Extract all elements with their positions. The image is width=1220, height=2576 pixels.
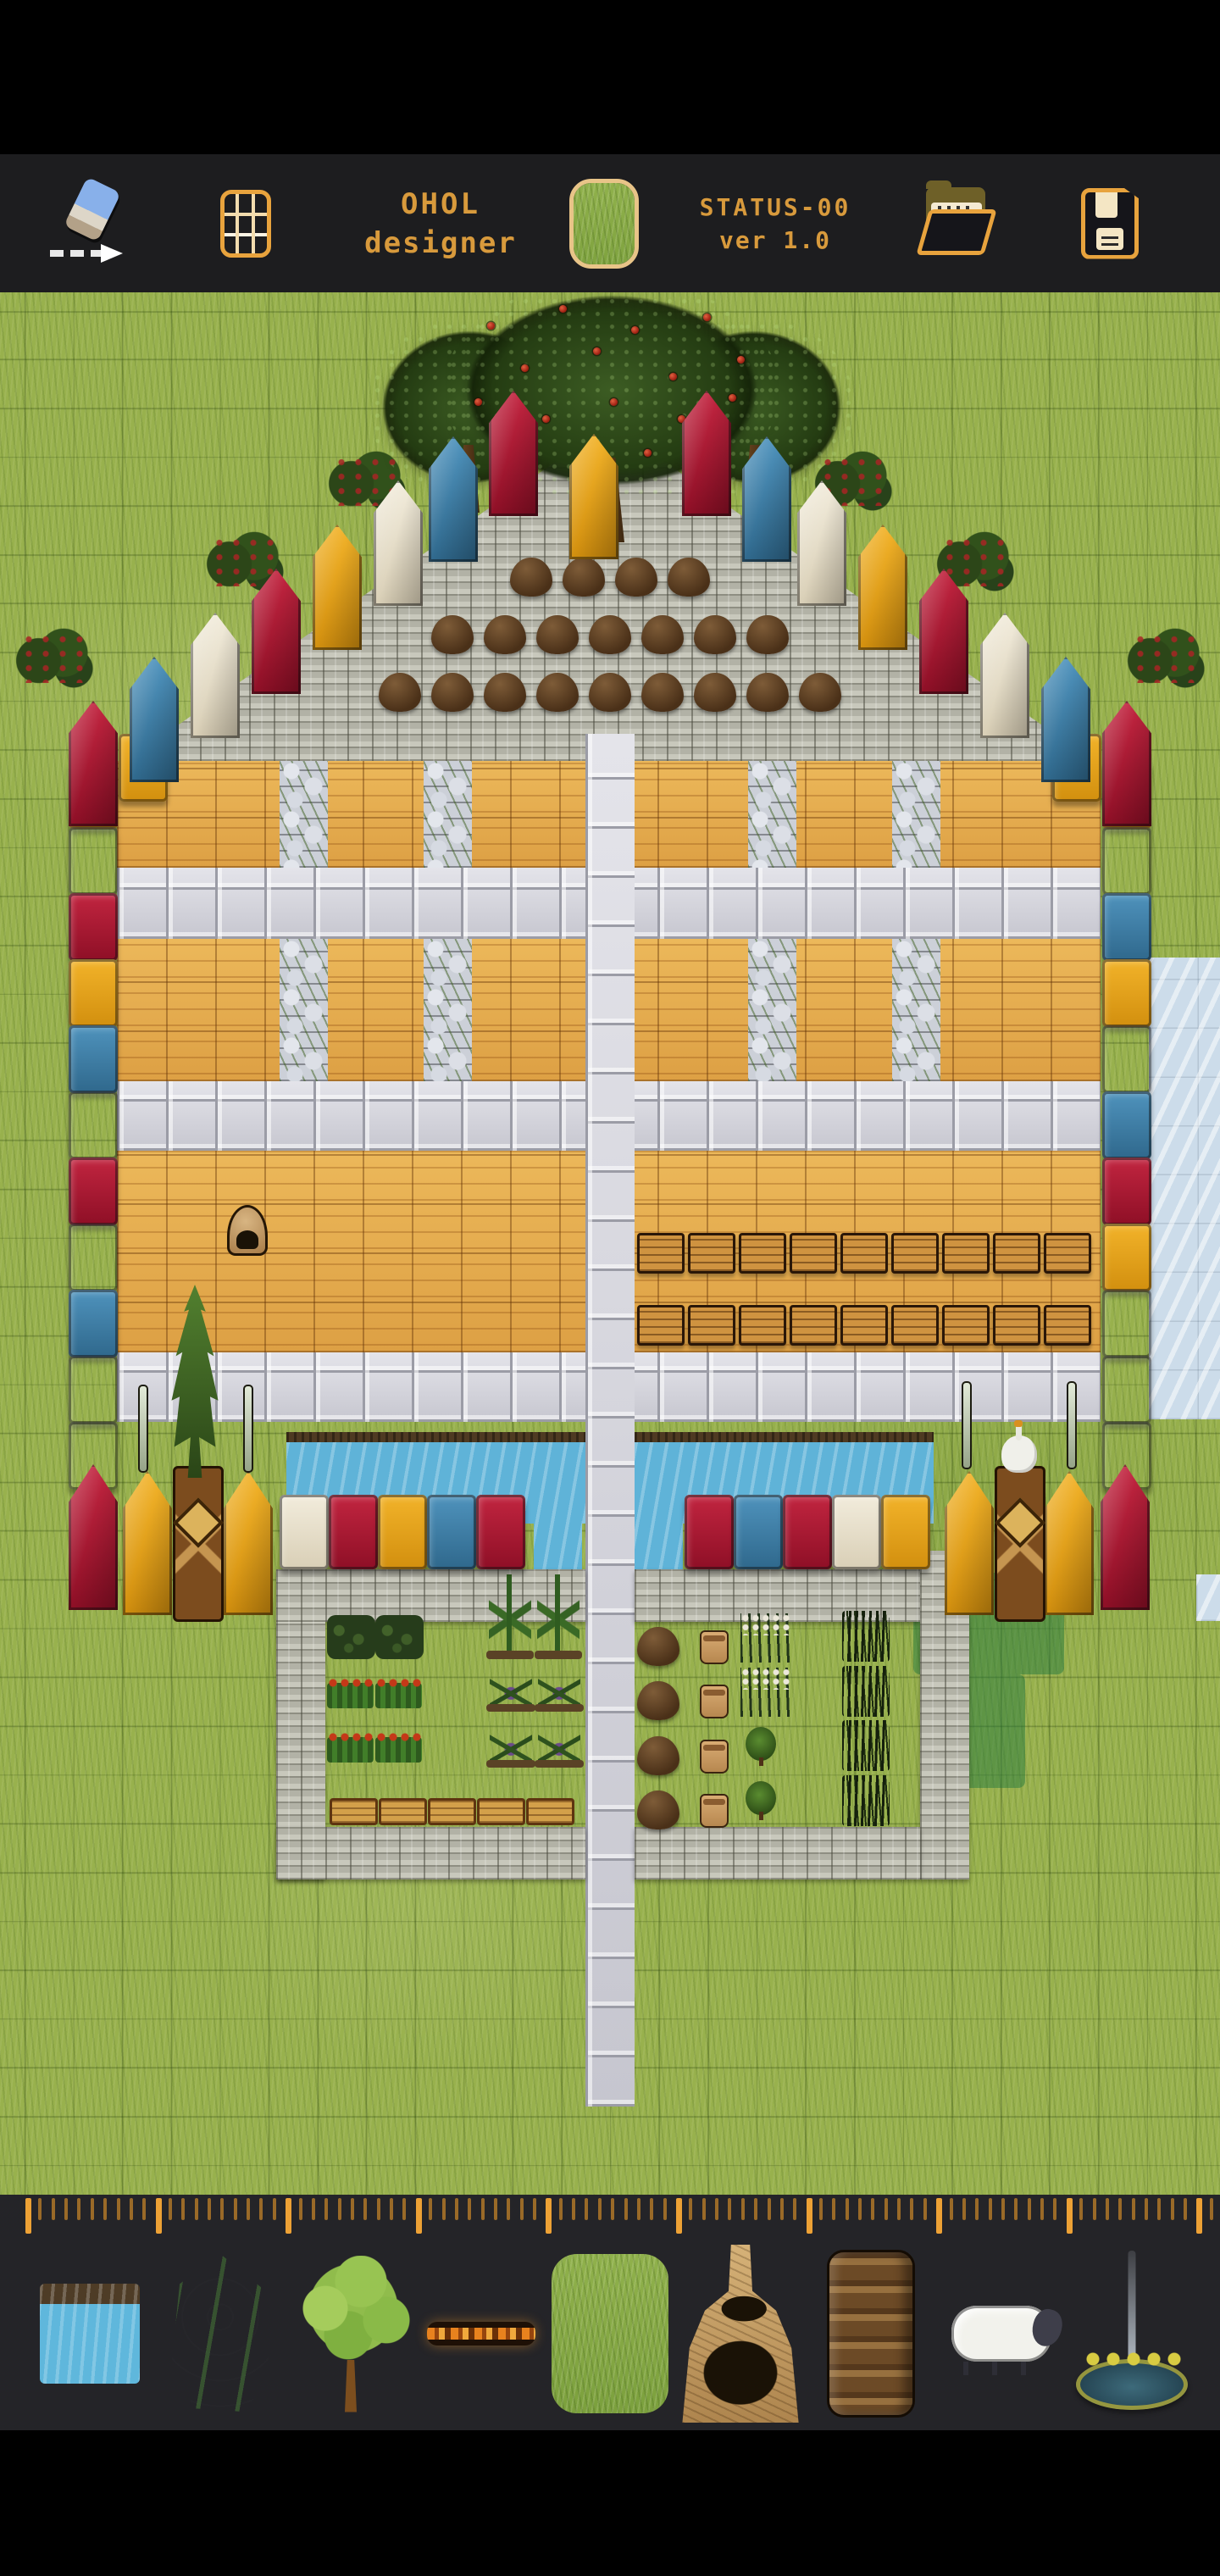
map-storage-box <box>69 1224 118 1291</box>
ruler-tick <box>780 2198 784 2220</box>
map-cobble <box>280 939 328 1081</box>
eraser-icon <box>55 177 131 270</box>
map-purple <box>538 1727 580 1768</box>
grid-icon <box>220 190 271 258</box>
ruler-tick <box>520 2198 524 2220</box>
map-jar <box>700 1740 729 1774</box>
ruler-tick <box>481 2198 485 2220</box>
ruler-tick <box>1184 2198 1187 2220</box>
map-mound <box>563 558 605 597</box>
ruler-tick <box>142 2198 146 2220</box>
ruler-tick <box>1040 2198 1044 2220</box>
map-storage-box <box>1102 1224 1151 1291</box>
map-storage-box <box>1102 1290 1151 1357</box>
map-water <box>534 1442 582 1571</box>
map-corn <box>537 1574 579 1659</box>
map-storage-box <box>1102 959 1151 1027</box>
ruler-tick <box>1132 2198 1135 2220</box>
map-apple <box>542 415 550 423</box>
map-cobble <box>280 761 328 868</box>
map-slab <box>585 734 635 2107</box>
map-firewood-crate <box>942 1305 990 1346</box>
ruler-tick <box>910 2198 913 2220</box>
ruler-tick <box>533 2198 536 2220</box>
map-firewood-crate <box>739 1233 786 1274</box>
ruler-tick <box>975 2198 979 2220</box>
map-mound <box>668 558 710 597</box>
map-mound <box>799 673 841 712</box>
ruler-tick <box>377 2198 380 2220</box>
rock-pillar-icon <box>167 2251 274 2417</box>
ruler-tick <box>338 2198 341 2220</box>
ruler-tick <box>299 2198 302 2220</box>
ruler-tick <box>324 2198 328 2220</box>
map-mound <box>484 673 526 712</box>
ruler-tick <box>156 2198 162 2234</box>
map-mound <box>637 1627 679 1666</box>
ruler-tick <box>754 2198 757 2220</box>
ruler-tick <box>637 2198 640 2220</box>
geyser-icon <box>1076 2359 1188 2410</box>
ruler-tick <box>64 2198 68 2220</box>
palette-item-ring-stack[interactable] <box>803 2237 939 2430</box>
map-mound <box>637 1736 679 1775</box>
map-box <box>783 1495 832 1569</box>
ruler-tick <box>181 2198 185 2220</box>
map-storage-box <box>69 1158 118 1225</box>
ruler-tick <box>38 2198 42 2220</box>
ruler-tick <box>715 2198 718 2220</box>
map-wheat <box>842 1775 890 1826</box>
status-text: STATUS-00 ver 1.0 <box>669 154 881 292</box>
map-cart <box>995 1466 1045 1622</box>
status-line1: STATUS-00 <box>700 193 851 221</box>
map-cobble <box>424 761 472 868</box>
palette-item-geyser[interactable] <box>1064 2237 1200 2430</box>
map-ice <box>1196 1574 1220 1621</box>
map-purple <box>490 1671 532 1712</box>
status-line2: ver 1.0 <box>700 226 851 254</box>
map-cobble <box>748 939 796 1081</box>
map-box <box>329 1495 378 1569</box>
ruler-tick <box>130 2198 133 2220</box>
status-bar <box>0 0 1220 154</box>
save-icon <box>1081 188 1139 259</box>
map-flowers <box>740 1613 790 1663</box>
map-mound <box>694 673 736 712</box>
map-carrots <box>327 1683 374 1708</box>
map-box <box>378 1495 427 1569</box>
ruler-tick <box>220 2198 224 2220</box>
ruler-tick <box>624 2198 628 2220</box>
map-storage-box <box>69 1290 118 1357</box>
ruler-tick <box>793 2198 796 2220</box>
map-jar <box>700 1685 729 1718</box>
map-cart <box>173 1466 224 1622</box>
palette-scroll-ruler <box>0 2198 1220 2237</box>
map-jar <box>700 1794 729 1828</box>
palette-item-kiln[interactable] <box>673 2237 808 2430</box>
ruler-tick <box>858 2198 862 2220</box>
grid-toggle-button[interactable] <box>216 154 275 292</box>
toolbar: OHOL designer STATUS-00 ver 1.0 <box>0 154 1220 292</box>
ruler-tick <box>286 2198 291 2234</box>
ruler-tick <box>429 2198 432 2220</box>
ruler-tick <box>195 2198 198 2220</box>
map-planter <box>428 1798 476 1825</box>
map-firewood-crate <box>1044 1305 1091 1346</box>
map-cobble <box>892 761 940 868</box>
ruler-tick <box>884 2198 888 2220</box>
map-bush <box>1127 627 1205 688</box>
ruler-tick <box>507 2198 510 2220</box>
map-mound <box>589 615 631 654</box>
ruler-tick <box>402 2198 406 2220</box>
folder-icon <box>921 187 1002 260</box>
ruler-tick <box>741 2198 745 2220</box>
map-apple <box>737 356 745 364</box>
palette-item-tree[interactable] <box>283 2237 419 2430</box>
map-box <box>734 1495 783 1569</box>
map-purple <box>538 1671 580 1712</box>
ruler-tick <box>312 2198 315 2220</box>
map-mound <box>694 615 736 654</box>
map-purple <box>490 1727 532 1768</box>
map-wheat <box>842 1611 890 1662</box>
ruler-tick <box>989 2198 992 2220</box>
ruler-tick <box>950 2198 953 2220</box>
map-wheat <box>842 1720 890 1771</box>
ruler-tick <box>702 2198 706 2220</box>
ruler-tick <box>103 2198 107 2220</box>
ruler-tick <box>1196 2198 1202 2234</box>
map-box <box>280 1495 329 1569</box>
map-apple <box>669 373 677 380</box>
map-canvas[interactable] <box>0 292 1220 2195</box>
ruler-tick <box>585 2198 588 2220</box>
map-firewood-crate <box>840 1305 888 1346</box>
ruler-tick <box>390 2198 393 2220</box>
map-jar <box>700 1630 729 1664</box>
ruler-tick <box>1106 2198 1109 2220</box>
map-mound <box>637 1790 679 1829</box>
ruler-tick <box>363 2198 367 2220</box>
map-storage-box <box>69 1025 118 1093</box>
map-mound <box>615 558 657 597</box>
ruler-tick <box>807 2198 812 2234</box>
embers-icon <box>427 2322 535 2346</box>
ruler-tick <box>936 2198 942 2234</box>
map-sbush <box>746 1727 776 1761</box>
ruler-tick <box>77 2198 80 2220</box>
map-bush <box>15 627 93 688</box>
ruler-tick <box>1145 2198 1148 2220</box>
water-tile-icon <box>40 2284 140 2384</box>
app-title-line1: OHOL <box>364 187 517 221</box>
map-pole <box>243 1385 253 1473</box>
ruler-tick <box>962 2198 966 2220</box>
ruler-tick <box>494 2198 497 2220</box>
map-storage-box <box>1102 827 1151 895</box>
tile-palette <box>0 2195 1220 2430</box>
map-flowers <box>740 1668 790 1717</box>
map-firewood-crate <box>942 1233 990 1274</box>
map-apple <box>487 322 495 330</box>
ruler-tick <box>351 2198 354 2220</box>
map-box <box>881 1495 930 1569</box>
ruler-tick <box>1067 2198 1073 2234</box>
open-file-button[interactable] <box>915 154 1008 292</box>
map-carrots <box>375 1737 422 1763</box>
map-apple <box>610 398 618 406</box>
kiln-icon <box>681 2245 800 2423</box>
app-title: OHOL designer <box>364 154 517 292</box>
map-storage-box <box>1102 1091 1151 1159</box>
map-sbush <box>746 1781 776 1815</box>
ruler-tick <box>1001 2198 1005 2220</box>
ruler-tick <box>455 2198 458 2220</box>
eraser-button[interactable] <box>51 154 136 292</box>
ruler-tick <box>234 2198 237 2220</box>
ruler-tick <box>650 2198 653 2220</box>
map-hedge <box>375 1615 424 1659</box>
map-planter <box>379 1798 427 1825</box>
bottom-bar <box>0 2430 1220 2576</box>
ruler-tick <box>468 2198 471 2220</box>
map-planter <box>526 1798 574 1825</box>
map-box <box>685 1495 734 1569</box>
current-tile-icon <box>569 179 639 269</box>
ruler-tick <box>52 2198 55 2220</box>
map-firewood-crate <box>993 1233 1040 1274</box>
map-carrots <box>327 1737 374 1763</box>
ruler-tick <box>832 2198 835 2220</box>
map-planter <box>330 1798 378 1825</box>
map-mound <box>746 615 789 654</box>
ruler-tick <box>1014 2198 1018 2220</box>
map-water <box>635 1442 683 1571</box>
map-storage-box <box>1102 1025 1151 1093</box>
grass-tile-icon <box>552 2254 668 2413</box>
map-firewood-crate <box>637 1305 685 1346</box>
ruler-tick <box>546 2198 552 2234</box>
map-storage-box <box>69 1091 118 1159</box>
map-wheat <box>842 1666 890 1717</box>
ruler-tick <box>208 2198 211 2220</box>
ruler-tick <box>25 2198 31 2234</box>
map-carrots <box>375 1683 422 1708</box>
ruler-tick <box>819 2198 823 2220</box>
palette-item-grass-tile[interactable] <box>542 2237 678 2430</box>
ruler-tick <box>1028 2198 1031 2220</box>
map-firewood-crate <box>993 1305 1040 1346</box>
map-mound <box>431 673 474 712</box>
ruler-tick <box>416 2198 422 2234</box>
ruler-tick <box>871 2198 874 2220</box>
ruler-tick <box>1157 2198 1161 2220</box>
ruler-tick <box>1079 2198 1083 2220</box>
map-apple <box>593 347 601 355</box>
map-corn <box>489 1574 531 1659</box>
sheep-icon <box>951 2306 1051 2362</box>
map-wall <box>635 1827 920 1879</box>
palette-item-water-tile[interactable] <box>22 2237 158 2430</box>
map-mound <box>379 673 421 712</box>
map-firewood-crate <box>688 1233 735 1274</box>
map-firewood-crate <box>840 1233 888 1274</box>
ruler-tick <box>689 2198 692 2220</box>
map-mound <box>536 673 579 712</box>
ruler-tick <box>247 2198 250 2220</box>
map-box <box>476 1495 525 1569</box>
ruler-tick <box>846 2198 849 2220</box>
ruler-tick <box>442 2198 446 2220</box>
map-mound <box>589 673 631 712</box>
map-firewood-crate <box>891 1233 939 1274</box>
map-firewood-crate <box>739 1305 786 1346</box>
map-mound <box>431 615 474 654</box>
map-mound <box>637 1681 679 1720</box>
ruler-tick <box>559 2198 563 2220</box>
map-apple <box>644 449 652 457</box>
map-storage-box <box>1102 893 1151 961</box>
ruler-tick <box>572 2198 575 2220</box>
tree-icon <box>287 2256 414 2412</box>
ring-stack-icon <box>827 2250 915 2418</box>
ruler-tick <box>91 2198 94 2220</box>
ruler-tick <box>923 2198 927 2220</box>
map-mound <box>641 673 684 712</box>
ruler-tick <box>663 2198 667 2220</box>
map-mound <box>510 558 552 597</box>
ruler-tick <box>1210 2198 1213 2220</box>
ruler-tick <box>273 2198 276 2220</box>
map-firewood-crate <box>790 1233 837 1274</box>
map-mound <box>641 615 684 654</box>
map-firewood-crate <box>688 1305 735 1346</box>
map-storage-box <box>1102 1356 1151 1424</box>
map-wall <box>276 1827 585 1879</box>
map-pole <box>1067 1381 1077 1469</box>
map-mound <box>536 615 579 654</box>
current-tile-button[interactable] <box>566 154 642 292</box>
map-apple <box>474 398 482 406</box>
ruler-tick <box>611 2198 614 2220</box>
ruler-tick <box>1093 2198 1096 2220</box>
palette-item-embers[interactable] <box>413 2237 549 2430</box>
map-goose <box>1001 1435 1037 1473</box>
ruler-tick <box>768 2198 771 2220</box>
save-button[interactable] <box>1072 154 1148 292</box>
map-storage-box <box>69 1356 118 1424</box>
ruler-tick <box>259 2198 263 2220</box>
map-firewood-crate <box>637 1233 685 1274</box>
ruler-tick <box>598 2198 602 2220</box>
map-pole <box>138 1385 148 1473</box>
palette-item-sheep[interactable] <box>934 2237 1069 2430</box>
map-cobble <box>424 939 472 1081</box>
map-firewood-crate <box>1044 1233 1091 1274</box>
map-apple <box>631 326 639 334</box>
map-planter <box>477 1798 525 1825</box>
ruler-tick <box>676 2198 682 2234</box>
map-storage-box <box>69 893 118 961</box>
ruler-tick <box>728 2198 731 2220</box>
map-apple <box>729 394 736 402</box>
map-firewood-crate <box>891 1305 939 1346</box>
map-box <box>832 1495 881 1569</box>
ruler-tick <box>1171 2198 1174 2220</box>
ruler-tick <box>169 2198 172 2220</box>
map-mound <box>746 673 789 712</box>
map-apple <box>559 305 567 313</box>
app-screen: OHOL designer STATUS-00 ver 1.0 <box>0 0 1220 2576</box>
map-storage-box <box>69 827 118 895</box>
map-mound <box>484 615 526 654</box>
map-box <box>427 1495 476 1569</box>
map-firewood-crate <box>790 1305 837 1346</box>
ruler-tick <box>117 2198 120 2220</box>
map-hedge <box>327 1615 375 1659</box>
palette-item-rock-pillar[interactable] <box>152 2237 288 2430</box>
ruler-tick <box>897 2198 901 2220</box>
ruler-tick <box>1053 2198 1056 2220</box>
map-apple <box>521 364 529 372</box>
app-title-line2: designer <box>364 226 517 260</box>
map-apple <box>703 314 711 321</box>
map-cobble <box>748 761 796 868</box>
map-storage-box <box>1102 1158 1151 1225</box>
map-storage-box <box>69 959 118 1027</box>
ruler-tick <box>1118 2198 1122 2220</box>
map-pole <box>962 1381 972 1469</box>
map-ice <box>1149 958 1220 1419</box>
map-cobble <box>892 939 940 1081</box>
